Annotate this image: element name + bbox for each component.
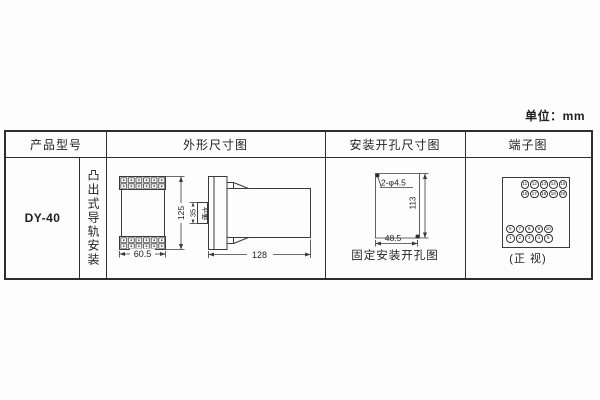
terminal-circle: 19 <box>549 190 558 199</box>
front-view <box>120 177 166 250</box>
terminal-circle: 8 <box>525 225 534 234</box>
svg-text:113: 113 <box>409 196 418 209</box>
terminal-row-bottom-1: 6 7 8 9 10 <box>506 225 553 234</box>
terminal-circle: 14 <box>549 180 558 189</box>
terminal-circle: 12 <box>530 180 539 189</box>
rail-slot-label: 卡槽 <box>197 202 208 224</box>
terminal-circle: 11 <box>521 180 530 189</box>
terminal-diagram-caption: (正 视) <box>465 250 591 265</box>
mount-hole-bottom-right <box>416 235 420 239</box>
table-border-right <box>591 130 593 280</box>
terminal-diagram-box: 11 12 13 14 15 16 17 18 19 20 6 7 8 9 10… <box>502 177 570 248</box>
page: 单位：mm 产品型号 外形尺寸图 安装开孔尺寸图 端子图 DY-40 凸出式导轨… <box>0 0 600 400</box>
header-terminal-diagram: 端子图 <box>465 131 591 157</box>
terminal-circle: 1 <box>506 234 515 243</box>
terminal-circle: 20 <box>559 190 568 199</box>
unit-label: 单位：mm <box>525 107 585 124</box>
terminal-circle: 3 <box>525 234 534 243</box>
svg-text:2-φ4.5: 2-φ4.5 <box>381 178 406 188</box>
svg-text:60.5: 60.5 <box>134 249 152 259</box>
terminal-circle: 4 <box>535 234 544 243</box>
side-view <box>209 177 311 250</box>
terminal-circle: 9 <box>535 225 544 234</box>
terminal-circle: 17 <box>530 190 539 199</box>
terminal-circle: 13 <box>540 180 549 189</box>
model-label: DY-40 <box>6 158 79 278</box>
terminal-row-top-1: 11 12 13 14 15 <box>521 180 568 189</box>
svg-text:48.5: 48.5 <box>385 233 402 243</box>
outline-dimension-drawing: 60.5 125 35 128 <box>106 158 325 279</box>
terminal-strip-bottom <box>120 237 166 249</box>
svg-text:125: 125 <box>176 206 186 220</box>
mount-type-label: 凸出式导轨安装 <box>80 158 106 278</box>
terminal-circle: 7 <box>516 225 525 234</box>
dim-hole-width-48-5: 48.5 <box>376 233 418 247</box>
terminal-circle: 10 <box>544 225 553 234</box>
header-product-model: 产品型号 <box>6 131 106 157</box>
holes-callout: 2-φ4.5 <box>378 176 414 188</box>
terminal-strip-top <box>120 177 166 189</box>
terminal-circle: 18 <box>540 190 549 199</box>
terminal-row-bottom-2: 1 2 3 4 5 <box>506 234 553 243</box>
header-outline-dimensions: 外形尺寸图 <box>106 131 325 157</box>
dim-height-125: 125 <box>166 177 186 250</box>
terminal-circle: 5 <box>544 234 553 243</box>
terminal-circle: 16 <box>521 190 530 199</box>
svg-text:128: 128 <box>252 250 267 260</box>
header-mounting-holes: 安装开孔尺寸图 <box>325 131 465 157</box>
terminal-circle: 15 <box>559 180 568 189</box>
dim-width-60-5: 60.5 <box>120 249 166 260</box>
terminal-circle: 6 <box>506 225 515 234</box>
mounting-hole-caption: 固定安装开孔图 <box>325 247 465 263</box>
dim-hole-height-113: 113 <box>409 174 429 239</box>
terminal-row-top-2: 16 17 18 19 20 <box>521 190 568 199</box>
terminal-circle: 2 <box>516 234 525 243</box>
